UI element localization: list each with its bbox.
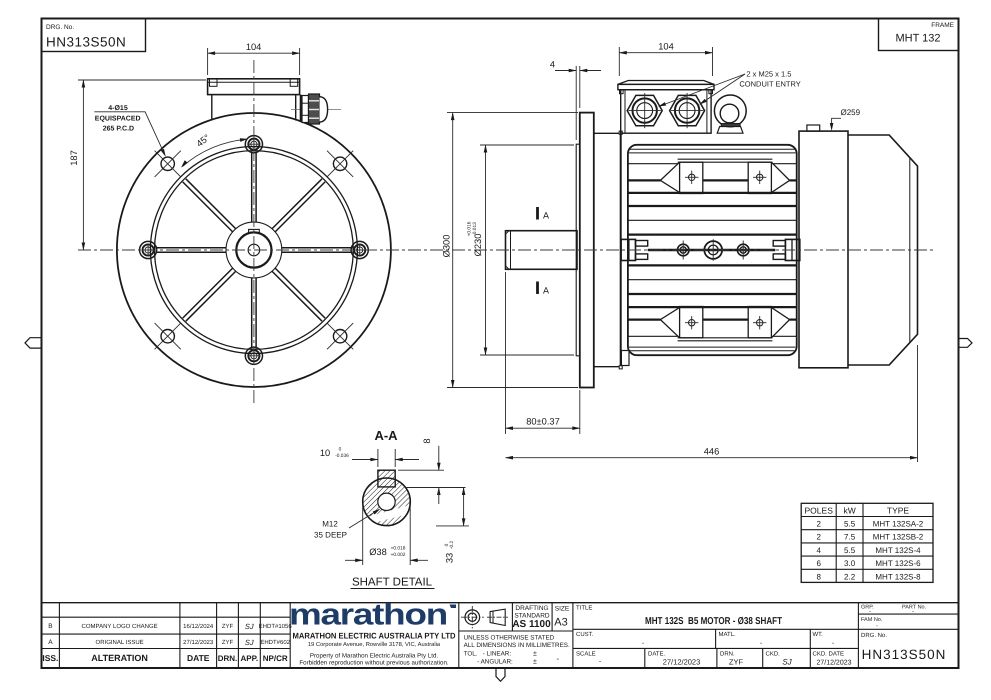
svg-text:NP/CR: NP/CR <box>263 654 288 663</box>
svg-text:POLES: POLES <box>805 505 834 515</box>
svg-text:MHT 132S B5 MOTOR - Ø38 SHAFT: MHT 132S B5 MOTOR - Ø38 SHAFT <box>645 616 782 627</box>
svg-text:FAM No.: FAM No. <box>861 617 883 623</box>
svg-text:27/12/2023: 27/12/2023 <box>183 639 214 646</box>
svg-text:-: - <box>876 624 878 630</box>
svg-text:EQUISPACED: EQUISPACED <box>95 115 141 122</box>
svg-text:Ø300: Ø300 <box>442 235 452 258</box>
svg-text:ZYF: ZYF <box>222 623 234 630</box>
svg-text:3.0: 3.0 <box>844 559 856 568</box>
svg-text:5.5: 5.5 <box>844 520 856 529</box>
svg-text:2: 2 <box>816 533 821 542</box>
svg-text:Property of Marathon Electric: Property of Marathon Electric Australia … <box>310 653 439 660</box>
svg-text:5.5: 5.5 <box>844 546 856 555</box>
svg-text:GRP.: GRP. <box>861 605 874 611</box>
svg-text:ZYF: ZYF <box>222 639 234 646</box>
svg-text:MHT 132S-8: MHT 132S-8 <box>875 572 921 581</box>
svg-text:4: 4 <box>550 60 555 70</box>
svg-text:M12: M12 <box>322 520 338 529</box>
svg-text:MHT 132: MHT 132 <box>895 33 940 45</box>
svg-text:-0.036: -0.036 <box>335 453 349 459</box>
svg-text:SCALE: SCALE <box>576 651 596 658</box>
svg-text:UNLESS OTHERWISE STATED: UNLESS OTHERWISE STATED <box>464 635 555 642</box>
svg-text:27/12/2023: 27/12/2023 <box>663 658 701 667</box>
svg-text:FRAME: FRAME <box>931 22 954 29</box>
svg-text:35 DEEP: 35 DEEP <box>314 531 347 540</box>
svg-text:2 x M25 x 1.5: 2 x M25 x 1.5 <box>746 70 791 79</box>
svg-text:-: - <box>912 609 914 615</box>
svg-text:A-A: A-A <box>374 428 398 443</box>
svg-text:-0.2: -0.2 <box>449 541 455 550</box>
svg-text:+0.002: +0.002 <box>391 552 406 558</box>
svg-text:-: - <box>869 609 871 615</box>
svg-text:104: 104 <box>658 42 674 52</box>
svg-text:- ANGULAR:: - ANGULAR: <box>477 659 513 666</box>
svg-text:CONDUIT ENTRY: CONDUIT ENTRY <box>739 80 800 89</box>
svg-text:CKD. DATE: CKD. DATE <box>813 651 845 658</box>
svg-text:ZYF: ZYF <box>729 658 744 667</box>
svg-text:COMPANY LOGO CHANGE: COMPANY LOGO CHANGE <box>82 623 158 630</box>
svg-text:±: ± <box>533 650 537 657</box>
svg-text:+0.016: +0.016 <box>467 221 473 236</box>
svg-text:MHT 132SA-2: MHT 132SA-2 <box>873 520 924 529</box>
svg-text:EHDT#1056: EHDT#1056 <box>259 623 293 630</box>
svg-text:DRAFTING: DRAFTING <box>515 605 548 612</box>
svg-text:TYPE: TYPE <box>887 505 910 515</box>
svg-text:MHT 132S-4: MHT 132S-4 <box>875 546 921 555</box>
svg-text:HN313S50N: HN313S50N <box>46 35 126 50</box>
svg-text:WT.: WT. <box>813 631 824 638</box>
svg-text:2: 2 <box>816 520 821 529</box>
svg-text:ISS.: ISS. <box>42 653 58 663</box>
svg-text:ORIGINAL ISSUE: ORIGINAL ISSUE <box>96 639 144 646</box>
svg-text:Ø259: Ø259 <box>841 108 861 117</box>
svg-text:446: 446 <box>704 447 720 457</box>
svg-text:27/12/2023: 27/12/2023 <box>816 659 851 667</box>
svg-text:80±0.37: 80±0.37 <box>526 417 560 427</box>
svg-text:A3: A3 <box>554 617 567 629</box>
svg-text:MATL.: MATL. <box>719 631 737 638</box>
svg-text:kW: kW <box>843 505 855 515</box>
svg-text:B: B <box>48 623 52 630</box>
svg-text:6: 6 <box>816 559 821 568</box>
svg-text:DATE.: DATE. <box>648 651 666 658</box>
svg-text:19 Corporate Avenue, Rowville: 19 Corporate Avenue, Rowville 3178, VIC,… <box>308 641 441 648</box>
svg-text:SIZE: SIZE <box>555 606 570 613</box>
svg-text:16/12/2024: 16/12/2024 <box>183 623 214 630</box>
svg-text:MHT 132SB-2: MHT 132SB-2 <box>873 533 924 542</box>
svg-text:APP.: APP. <box>240 654 258 663</box>
svg-text:A: A <box>543 286 549 296</box>
svg-text:Ø38: Ø38 <box>369 547 387 557</box>
svg-text:ALTERATION: ALTERATION <box>91 653 148 663</box>
svg-text:2.2: 2.2 <box>844 572 856 581</box>
svg-text:MHT 132S-6: MHT 132S-6 <box>875 559 921 568</box>
svg-text:CKD.: CKD. <box>766 651 781 658</box>
svg-text:DRN.: DRN. <box>720 651 735 658</box>
svg-text:DRG. No.: DRG. No. <box>46 24 74 31</box>
svg-text:33: 33 <box>445 553 455 563</box>
svg-text:104: 104 <box>246 42 262 52</box>
svg-text:EHDT#602: EHDT#602 <box>260 639 290 646</box>
svg-text:TITLE: TITLE <box>576 605 592 612</box>
svg-text:CUST.: CUST. <box>576 631 594 638</box>
svg-text:187: 187 <box>69 150 79 166</box>
svg-text:10: 10 <box>320 448 330 458</box>
svg-text:A: A <box>48 639 53 646</box>
svg-text:SHAFT DETAIL: SHAFT DETAIL <box>352 577 433 589</box>
svg-text:-0.013: -0.013 <box>472 222 478 236</box>
svg-text:0: 0 <box>339 447 342 453</box>
svg-text:±: ± <box>533 659 537 666</box>
svg-text:marathon: marathon <box>289 599 447 632</box>
svg-text:A: A <box>543 211 549 221</box>
svg-text:7.5: 7.5 <box>844 533 856 542</box>
svg-text:Forbidden reproduction without: Forbidden reproduction without previous … <box>299 660 449 667</box>
svg-text:TOL. - LINEAR:: TOL. - LINEAR: <box>464 650 512 657</box>
svg-text:DRG. No.: DRG. No. <box>861 632 887 639</box>
svg-text:AS 1100: AS 1100 <box>512 619 551 630</box>
svg-text:SJ: SJ <box>782 658 792 667</box>
svg-text:SJ: SJ <box>245 622 254 631</box>
svg-text:4: 4 <box>816 546 821 555</box>
svg-text:8: 8 <box>422 438 432 443</box>
svg-text:Ø230: Ø230 <box>473 234 483 257</box>
svg-text:8: 8 <box>816 572 821 581</box>
svg-text:SJ: SJ <box>245 638 254 647</box>
svg-text:MARATHON ELECTRIC AUSTRALIA PT: MARATHON ELECTRIC AUSTRALIA PTY LTD <box>293 632 456 641</box>
svg-text:4-Ø15: 4-Ø15 <box>108 104 128 112</box>
svg-text:HN313S50N: HN313S50N <box>862 647 947 662</box>
svg-text:PART No.: PART No. <box>902 605 927 611</box>
svg-text:265 P.C.D: 265 P.C.D <box>103 126 134 133</box>
svg-text:+0.018: +0.018 <box>391 546 406 552</box>
svg-text:ALL DIMENSIONS IN MILLIMETRES.: ALL DIMENSIONS IN MILLIMETRES. <box>464 642 570 649</box>
svg-text:DRN.: DRN. <box>218 654 238 663</box>
svg-text:DATE: DATE <box>187 653 210 663</box>
